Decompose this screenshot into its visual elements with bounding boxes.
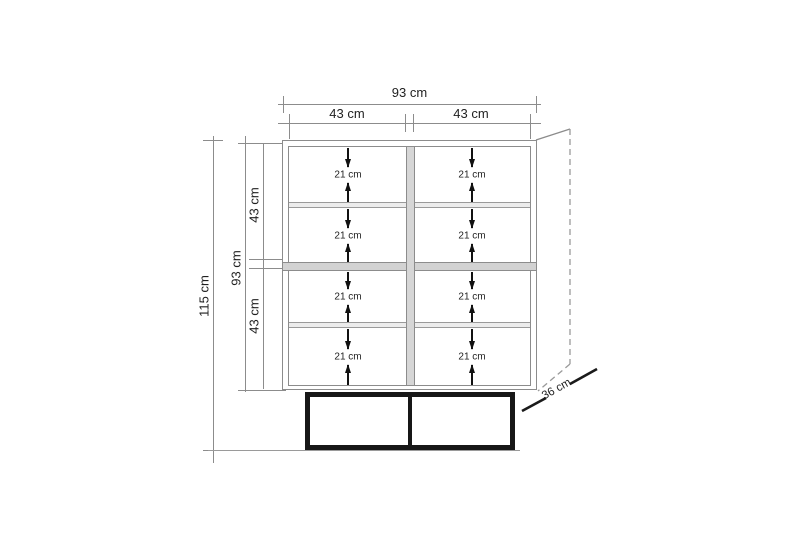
arrow-down-icon [345,281,351,290]
right-section-dimension-line [407,123,541,124]
compartment-size-label: 21 cm [457,230,486,241]
compartment-size-label: 21 cm [333,352,362,363]
compartment-dimension: 21 cm [454,272,490,322]
dimension-line [347,183,349,202]
arrow-down-icon [345,159,351,168]
overall-width-label: 93 cm [278,86,541,99]
compartment-dimension: 21 cm [454,209,490,262]
arrow-down-icon [345,220,351,229]
arrow-down-icon [469,159,475,168]
left-section-dimension-line [278,123,411,124]
compartment-dimension: 21 cm [454,148,490,202]
half-height-dimension-line [263,143,264,389]
compartment-size-label: 21 cm [333,170,362,181]
compartment-size-label: 21 cm [457,170,486,181]
depth-dimension-line [570,369,597,384]
compartment-dimension: 21 cm [330,272,366,322]
total-height-dimension-line [213,136,214,463]
compartment-dimension: 21 cm [454,329,490,385]
left-section-width-label: 43 cm [289,107,405,120]
arrow-down-icon [345,341,351,350]
depth-label: 36 cm [541,377,574,402]
dimension-line [347,244,349,263]
dimension-line [347,305,349,322]
dimension-tick [238,390,286,391]
dimension-tick [530,114,531,139]
depth-dimension-line [522,398,546,411]
compartment-dimension: 21 cm [330,209,366,262]
compartment-size-label: 21 cm [457,292,486,303]
center-divider [406,147,415,385]
base-divider [408,397,412,445]
base-plinth [305,392,515,450]
ground-line [208,450,520,451]
compartment-size-label: 21 cm [333,292,362,303]
compartment-size-label: 21 cm [333,230,362,241]
body-height-dimension-line [245,136,246,392]
upper-section-height-label: 43 cm [248,187,261,222]
dimension-line [471,244,473,263]
arrow-down-icon [469,281,475,290]
compartment-dimension: 21 cm [330,148,366,202]
side-top-edge-line [536,129,570,140]
dimension-tick [203,140,223,141]
dimension-line [471,183,473,202]
lower-section-height-label: 43 cm [248,298,261,333]
dimension-line [471,365,473,385]
total-height-label: 115 cm [198,275,211,317]
dimension-tick [238,143,286,144]
arrow-down-icon [469,220,475,229]
right-section-width-label: 43 cm [413,107,529,120]
furniture-dimension-diagram: { "diagram": { "unit": "cm", "top_dimens… [0,0,800,533]
dimension-tick [405,114,406,132]
overall-width-dimension-line [278,104,541,105]
body-height-label: 93 cm [230,250,243,285]
compartment-dimension: 21 cm [330,329,366,385]
arrow-down-icon [469,341,475,350]
compartment-size-label: 21 cm [457,352,486,363]
dimension-line [471,305,473,322]
dimension-line [347,365,349,385]
